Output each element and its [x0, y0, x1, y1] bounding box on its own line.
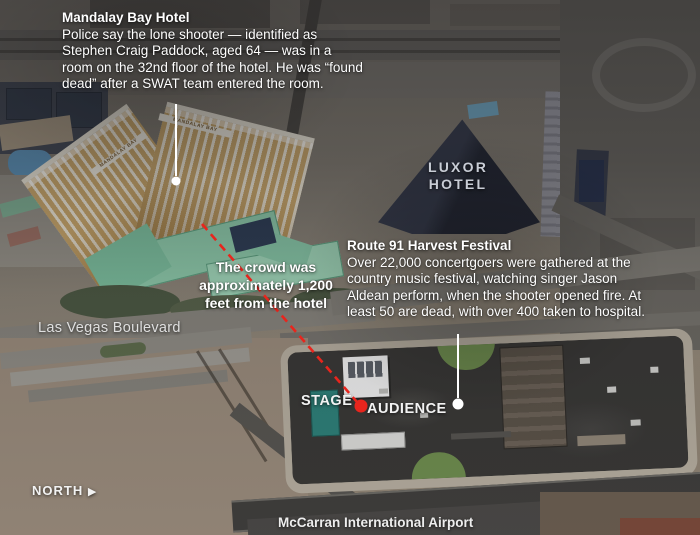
pool	[467, 101, 499, 119]
structure	[577, 434, 625, 446]
lawn	[411, 451, 466, 479]
festival-annotation: Route 91 Harvest Festival Over 22,000 co…	[347, 238, 647, 321]
audience-label: AUDIENCE	[367, 401, 447, 417]
structure	[451, 431, 511, 440]
road-loop	[592, 38, 696, 112]
truck	[631, 419, 641, 425]
north-label: NORTH	[32, 483, 83, 498]
stage-label: STAGE	[301, 393, 352, 409]
trailer	[341, 432, 406, 451]
festival-asphalt	[287, 335, 688, 484]
airport-label: McCarran International Airport	[278, 515, 473, 530]
map-detail: LUXOR	[409, 159, 507, 176]
truck	[650, 367, 658, 373]
truck	[580, 358, 590, 364]
festival-annotation-title: Route 91 Harvest Festival	[347, 238, 647, 255]
mandalay-annotation: Mandalay Bay Hotel Police say the lone s…	[62, 10, 364, 93]
north-arrow-icon: ▶	[88, 486, 97, 498]
mandalay-annotation-body: Police say the lone shooter — identified…	[62, 27, 364, 93]
billboard	[579, 160, 604, 202]
mandalay-annotation-title: Mandalay Bay Hotel	[62, 10, 364, 27]
canopy-windows	[348, 361, 384, 379]
solar-panels	[6, 88, 52, 120]
lawn	[437, 341, 496, 372]
rooftop-block	[450, 4, 570, 26]
luxor-hotel-label: LUXOR HOTEL	[409, 159, 507, 193]
festival-annotation-body: Over 22,000 concertgoers were gathered a…	[347, 255, 647, 321]
las-vegas-boulevard-label: Las Vegas Boulevard	[38, 320, 181, 336]
dirt-patch	[620, 518, 700, 535]
map-detail: HOTEL	[409, 176, 507, 193]
distance-annotation: The crowd was approximately 1,200 feet f…	[194, 258, 338, 312]
north-indicator: NORTH ▶	[32, 483, 97, 498]
truck	[379, 388, 388, 393]
festival-grounds	[280, 328, 698, 494]
news-map-graphic: MANDALAY BAY MANDALAY BAY	[0, 0, 700, 535]
truck	[607, 386, 616, 392]
